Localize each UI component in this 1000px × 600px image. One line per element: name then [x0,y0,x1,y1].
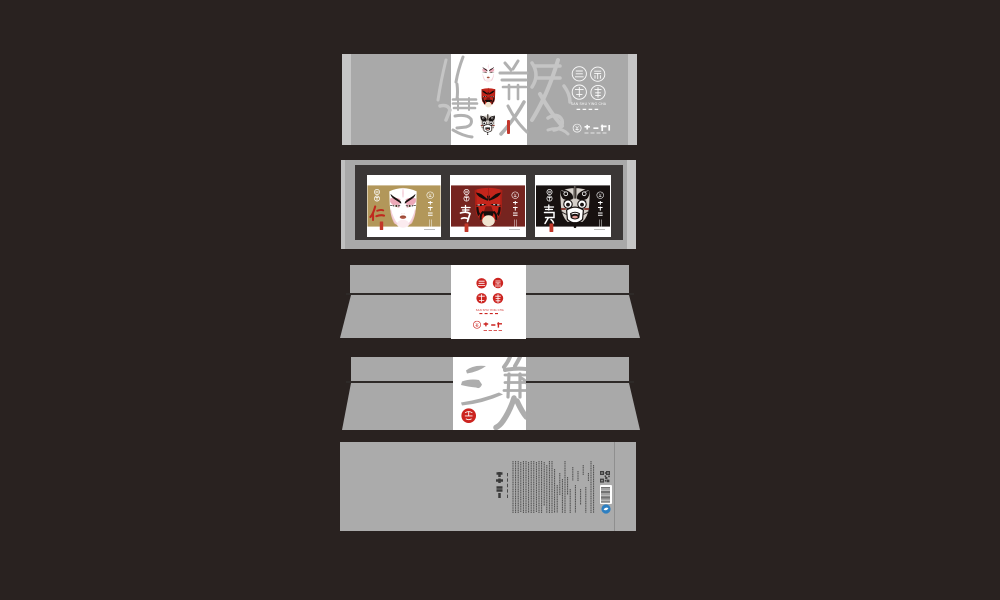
svg-text:SAN SHU YING CHA: SAN SHU YING CHA [475,308,503,312]
svg-text:SAN SHU YING CHA: SAN SHU YING CHA [571,102,607,106]
